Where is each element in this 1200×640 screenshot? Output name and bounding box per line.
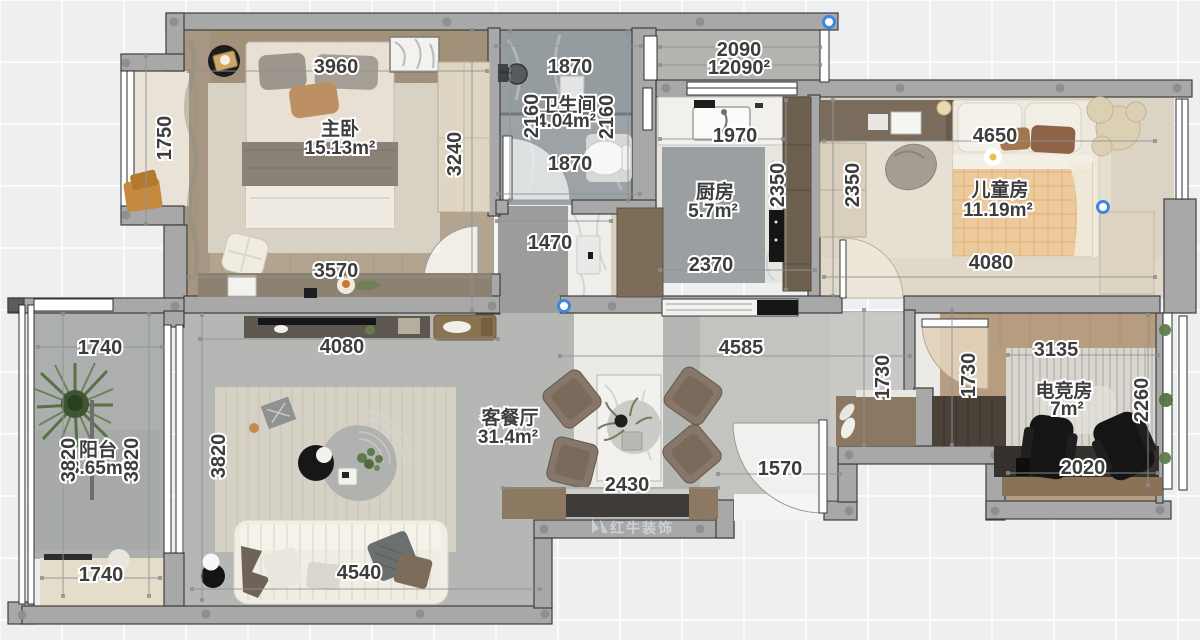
svg-text:5.7m²: 5.7m² (688, 201, 738, 222)
svg-text:3820: 3820 (208, 434, 230, 479)
svg-text:3570: 3570 (314, 260, 359, 282)
svg-text:3820: 3820 (121, 438, 143, 483)
svg-text:4.04m²: 4.04m² (536, 111, 596, 132)
svg-text:7m²: 7m² (1050, 399, 1084, 420)
svg-text:1740: 1740 (78, 337, 123, 359)
svg-text:3135: 3135 (1034, 339, 1079, 361)
svg-text:2160: 2160 (596, 95, 618, 140)
svg-text:3960: 3960 (314, 56, 359, 78)
svg-text:3240: 3240 (444, 132, 466, 177)
svg-text:4080: 4080 (320, 336, 365, 358)
svg-text:红牛装饰: 红牛装饰 (610, 520, 674, 536)
svg-text:2370: 2370 (689, 254, 734, 276)
svg-text:1870: 1870 (548, 153, 593, 175)
svg-text:1470: 1470 (528, 232, 573, 254)
svg-text:15.13m²: 15.13m² (305, 138, 376, 159)
svg-text:4650: 4650 (973, 125, 1018, 147)
svg-text:厨房: 厨房 (696, 180, 734, 203)
svg-text:12090²: 12090² (708, 57, 771, 79)
svg-text:11.19m²: 11.19m² (963, 200, 1033, 221)
svg-text:1570: 1570 (758, 458, 803, 480)
svg-text:2260: 2260 (1131, 378, 1153, 423)
svg-text:3820: 3820 (58, 438, 80, 483)
svg-text:客餐厅: 客餐厅 (481, 406, 538, 429)
svg-text:主卧: 主卧 (321, 118, 359, 140)
svg-text:2350: 2350 (842, 163, 864, 208)
svg-text:31.4m²: 31.4m² (478, 427, 538, 448)
svg-text:2160: 2160 (521, 94, 543, 139)
svg-text:4080: 4080 (969, 252, 1014, 274)
svg-text:2020: 2020 (1061, 457, 1106, 479)
svg-text:1740: 1740 (79, 564, 124, 586)
svg-text:1730: 1730 (872, 355, 894, 400)
svg-text:儿童房: 儿童房 (970, 178, 1028, 201)
svg-text:4585: 4585 (719, 337, 764, 359)
svg-text:2430: 2430 (605, 474, 650, 496)
svg-text:2350: 2350 (767, 163, 789, 208)
svg-text:1870: 1870 (548, 56, 593, 78)
svg-text:4540: 4540 (337, 562, 382, 584)
svg-text:1730: 1730 (958, 353, 980, 398)
svg-text:1750: 1750 (154, 116, 176, 161)
svg-text:1970: 1970 (713, 125, 758, 147)
